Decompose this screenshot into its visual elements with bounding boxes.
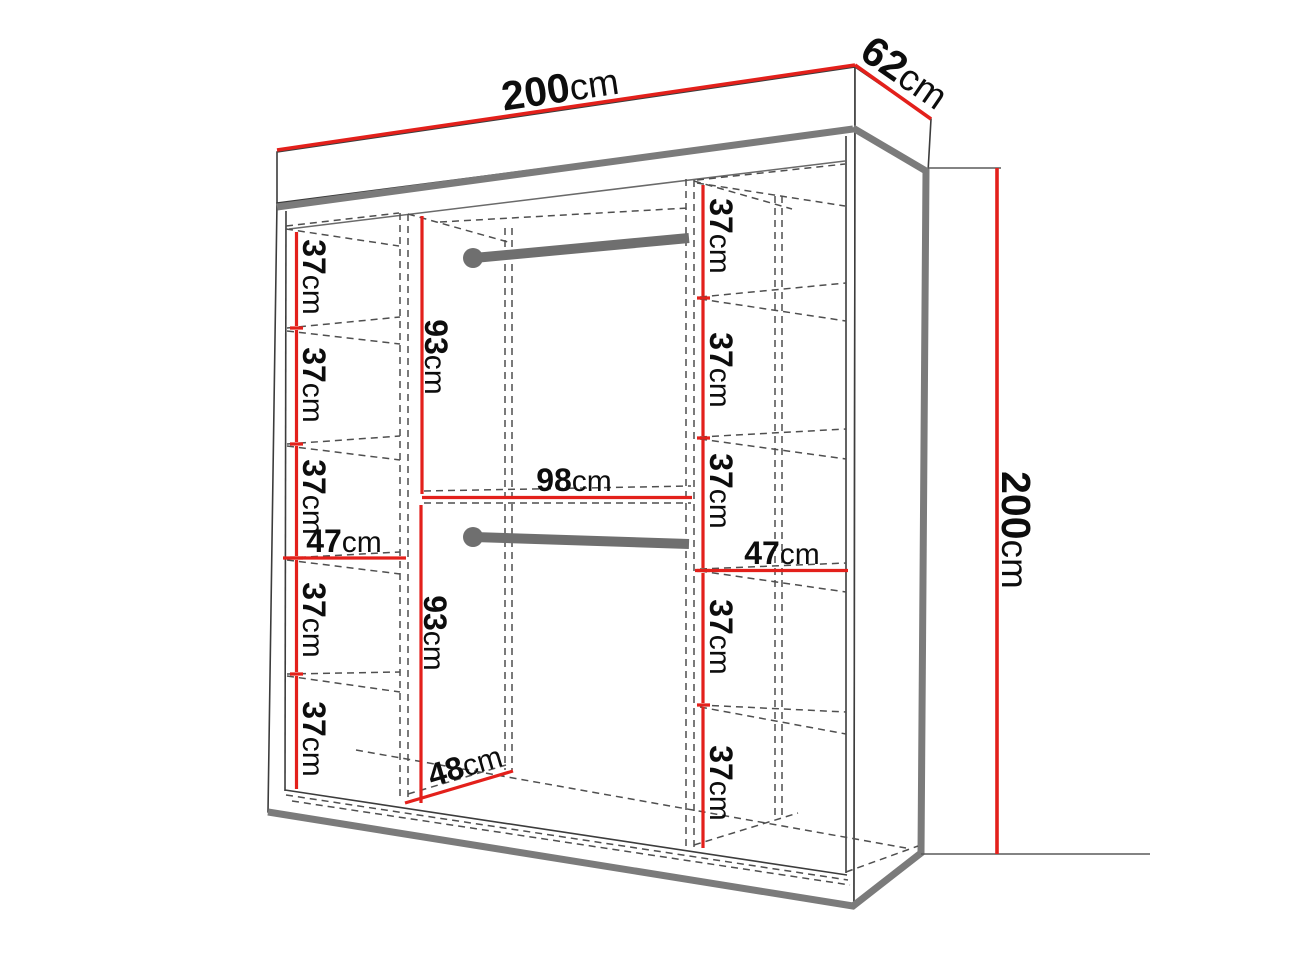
dim-unit: cm: [703, 781, 736, 821]
dim-unit: cm: [342, 526, 382, 559]
label-right-section-4: 37cm: [703, 599, 739, 675]
dim-unit: cm: [703, 489, 736, 529]
dim-value: 93: [418, 319, 454, 355]
label-left-section-1: 37cm: [296, 239, 332, 315]
dim-unit: cm: [567, 61, 622, 109]
label-left-section-4: 37cm: [296, 582, 332, 658]
dim-unit: cm: [703, 234, 736, 274]
dim-unit: cm: [296, 383, 329, 423]
diagram-canvas: 200cm 62cm 200cm 37cm 37cm 37cm 37cm 37c…: [0, 0, 1303, 977]
label-left-width: 47cm: [306, 523, 382, 559]
hanging-rod-lower: [474, 537, 689, 544]
dim-value: 37: [296, 459, 332, 495]
dim-value: 47: [306, 523, 342, 559]
dim-value: 98: [536, 462, 572, 498]
label-middle-upper-height: 93cm: [418, 319, 454, 395]
dim-value: 37: [296, 347, 332, 383]
dim-unit: cm: [572, 465, 612, 498]
label-left-section-2: 37cm: [296, 347, 332, 423]
dim-unit: cm: [418, 355, 451, 395]
dim-unit: cm: [296, 275, 329, 315]
dim-value: 37: [703, 198, 739, 234]
hanging-rod-lower-end-cap: [463, 527, 483, 547]
dim-unit: cm: [703, 635, 736, 675]
dim-value: 200: [993, 471, 1039, 539]
dim-value: 47: [744, 535, 780, 571]
dim-value: 37: [703, 453, 739, 489]
dim-unit: cm: [780, 538, 820, 571]
hanging-rod-upper-end-cap: [463, 248, 483, 268]
label-right-section-2: 37cm: [703, 332, 739, 408]
label-side-height: 200cm: [993, 471, 1039, 589]
dim-value: 37: [296, 582, 332, 618]
wardrobe-dimension-diagram: 200cm 62cm 200cm 37cm 37cm 37cm 37cm 37c…: [0, 0, 1303, 977]
dim-value: 37: [703, 745, 739, 781]
left-wall-inner-edge: [285, 211, 286, 791]
label-middle-lower-height: 93cm: [417, 595, 453, 671]
dim-unit: cm: [296, 618, 329, 658]
dim-value: 37: [703, 332, 739, 368]
label-middle-width: 98cm: [536, 462, 612, 498]
label-right-section-1: 37cm: [703, 198, 739, 274]
label-right-section-5: 37cm: [703, 745, 739, 821]
label-right-width: 47cm: [744, 535, 820, 571]
dim-unit: cm: [703, 368, 736, 408]
dim-value: 37: [296, 701, 332, 737]
dim-unit: cm: [417, 631, 450, 671]
right-side-panel: [854, 128, 928, 908]
dim-unit: cm: [994, 540, 1035, 589]
dim-value: 37: [703, 599, 739, 635]
dim-unit: cm: [296, 737, 329, 777]
label-left-section-5: 37cm: [296, 701, 332, 777]
label-right-section-3: 37cm: [703, 453, 739, 529]
dim-value: 37: [296, 239, 332, 275]
dim-value: 93: [417, 595, 453, 631]
